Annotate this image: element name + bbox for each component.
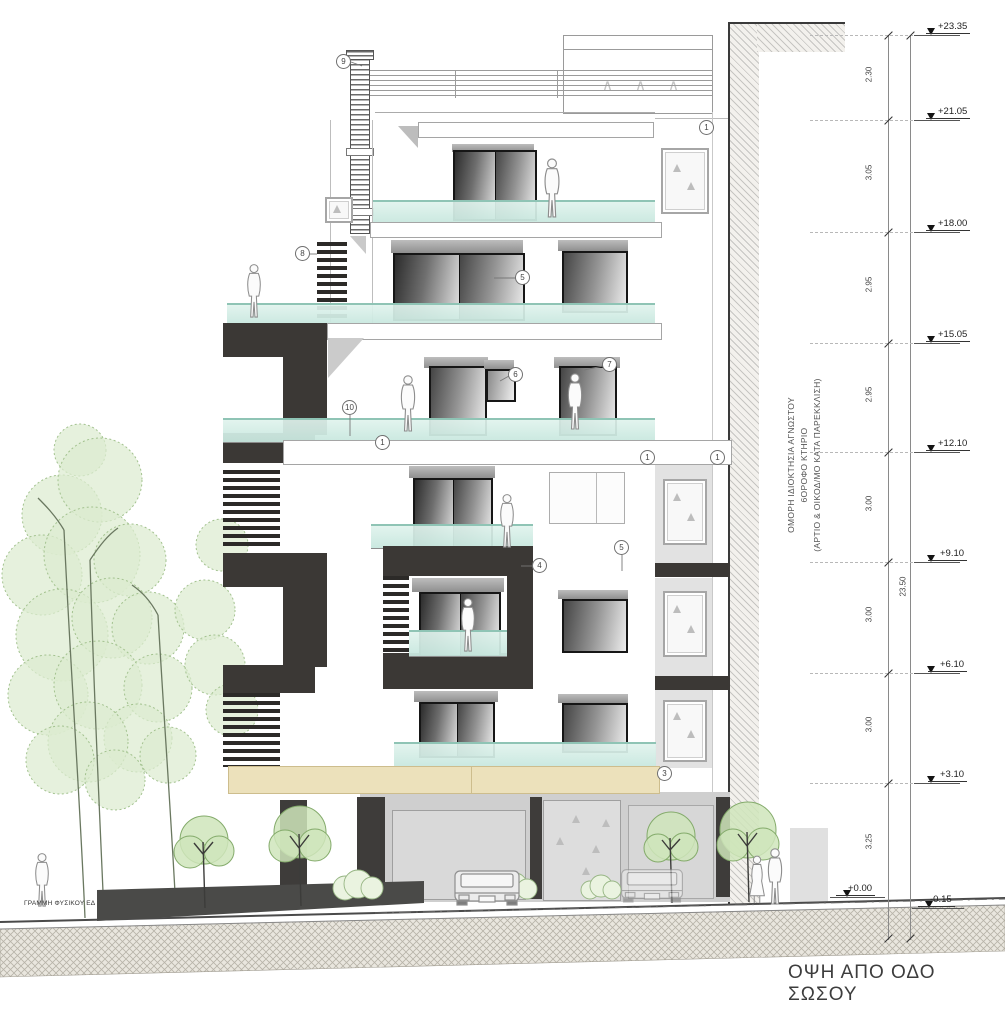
pergola-line [352,75,712,76]
door-lintel [412,578,504,592]
level-line [914,673,960,674]
dimension-chain-line [888,35,889,940]
floor-slab-band [283,440,732,465]
callout-1: 1 [699,120,714,135]
balcony-dark-frame-side [507,546,533,670]
column [530,797,542,899]
balcony-glass-balustrade [394,742,656,769]
plant-icon [582,867,590,875]
slab-dark-band [655,563,730,577]
person-figure [768,849,781,904]
window-lintel [484,360,514,369]
plant-icon [602,819,610,827]
callout-4: 4 [532,558,547,573]
plant-icon [687,182,695,190]
louvre-screen [223,470,280,548]
level-extension-line [810,35,918,36]
open-window [549,472,625,524]
adjacent-property-note: ΟΜΟΡΗ ΙΔΙΟΚΤΗΣΙΑ ΑΓΝΩΣΤΟΥ 6ΟΡΟΦΟ ΚΤΗΡΙΟ … [785,295,827,635]
level-line [914,35,960,36]
roofbox-parapet-line [564,49,712,50]
level-label: +9.10 [928,548,967,561]
note-line-2: 6ΟΡΟΦΟ ΚΤΗΡΙΟ [798,295,811,635]
level-label: +0.00 [836,883,875,896]
neighbour-bay-window [663,591,707,657]
level-extension-line [810,120,918,121]
dim-segment: 3.00 [865,708,874,742]
pergola-line [352,80,712,81]
plant-icon [673,164,681,172]
neighbour-bay-window [663,479,707,545]
penthouse-parapet [375,112,655,113]
callout-1: 1 [375,435,390,450]
callout-3: 3 [657,766,672,781]
level-label: +18.00 [926,218,970,231]
pergola-line [352,95,712,96]
note-line-1: ΟΜΟΡΗ ΙΔΙΟΚΤΗΣΙΑ ΑΓΝΩΣΤΟΥ [785,295,798,635]
neighbour-bay-window [663,700,707,762]
door-lintel [414,691,498,702]
neighbour-wall-hatch-vertical [728,22,759,905]
window-lintel [558,694,628,703]
plant-icon [673,712,681,720]
natural-ground-line-label: ΓΡΑΜΜΗ ΦΥΣΙΚΟΥ ΕΔ [24,900,95,907]
neighbour-ground-wall [790,828,828,902]
level-label: +3.10 [928,769,967,782]
pergola-post [557,70,558,98]
level-extension-line [810,673,918,674]
dim-segment: 3.00 [865,598,874,632]
penthouse-canopy-slab [418,122,654,138]
drawing-title: ΟΨΗ ΑΠΟ ΟΔΟ ΣΩΣΟΥ [788,962,1003,1006]
door-lintel [409,466,495,478]
plant-icon [333,205,341,213]
door-lintel [391,240,523,253]
plant-icon [687,513,695,521]
floor-slab-fascia [327,323,662,340]
level-line [914,562,960,563]
window-lintel [558,590,628,599]
glass-pane [564,601,626,651]
dim-segment: 2.30 [865,58,874,92]
callout-8: 8 [295,246,310,261]
elevation-drawing-sheet: ∧ ∧ ∧ [0,0,1005,1024]
callout-1: 1 [710,450,725,465]
dim-segment: 3.00 [865,487,874,521]
wall-shadow [328,338,364,378]
column [357,797,385,898]
plant-icon [673,605,681,613]
slab-shadow [350,236,366,254]
level-line [914,783,960,784]
dim-segment: 2.95 [865,268,874,302]
dim-segment: 2.95 [865,378,874,412]
louvre-screen [223,693,280,767]
right-bay-top-edge [655,118,728,119]
window-lintel [558,240,628,251]
dark-facade-frame [283,587,327,667]
level-line [830,897,885,898]
level-line [914,452,960,453]
level-line [912,908,964,909]
entrance-canopy [228,766,660,794]
window-mullion [596,473,597,523]
level-label: +12.10 [926,438,970,451]
dim-segment: 3.25 [865,825,874,859]
level-label: +21.05 [926,106,970,119]
callout-6: 6 [508,367,523,382]
column [716,797,730,897]
plant-icon [673,493,681,501]
balcony-dark-frame-bottom [383,653,533,689]
note-line-3: (ΑΡΤΙΟ & ΟΙΚΟΔ/ΜΟ ΚΑΤΑ ΠΑΡΕΚΚΛΙΣΗ) [811,295,824,635]
dim-segment: 3.05 [865,156,874,190]
entrance-glass-door [543,800,621,901]
plant-icon [592,845,600,853]
pergola-line [352,85,712,86]
plant-icon [687,625,695,633]
dim-total: 23.50 [899,570,908,604]
level-extension-line [810,232,918,233]
level-label: +23.35 [926,21,970,34]
garage-door [392,810,526,900]
pergola-post [455,70,456,98]
window [562,599,628,653]
level-label: +6.10 [928,659,967,672]
canopy-joint [471,767,472,793]
callout-10: 10 [342,400,357,415]
level-extension-line [810,783,918,784]
balcony-glass-balustrade [409,630,507,657]
callout-1: 1 [640,450,655,465]
garage-door [628,805,714,899]
person-figure [36,854,49,906]
pergola-line [352,90,712,91]
chimney-collar [346,148,374,156]
level-line [914,120,960,121]
level-line [914,232,960,233]
callout-9: 9 [336,54,351,69]
floor-slab-fascia [370,222,662,238]
dark-facade-frame [223,323,327,357]
level-label: +15.05 [926,329,970,342]
canopy-shadow [398,126,418,148]
neighbour-wall-hatch-top [757,22,845,52]
louvre-screen [383,576,409,654]
callout-5: 5 [515,270,530,285]
slab-dark-band [655,676,730,690]
dark-facade-frame [223,553,327,587]
dimension-overall-line [910,35,911,940]
pergola-line [352,70,712,71]
curb-line [0,905,1005,929]
chimney-flue [350,53,370,234]
plant-icon [687,730,695,738]
callout-7: 7 [602,357,617,372]
plant-icon [556,837,564,845]
neighbour-bay-window [661,148,709,214]
column [280,800,307,896]
setback-small-window [325,197,353,223]
callout-5: 5 [614,540,629,555]
dark-facade-frame [223,665,315,693]
level-label: -0.15 [918,894,955,907]
plant-icon [572,815,580,823]
level-line [914,343,960,344]
